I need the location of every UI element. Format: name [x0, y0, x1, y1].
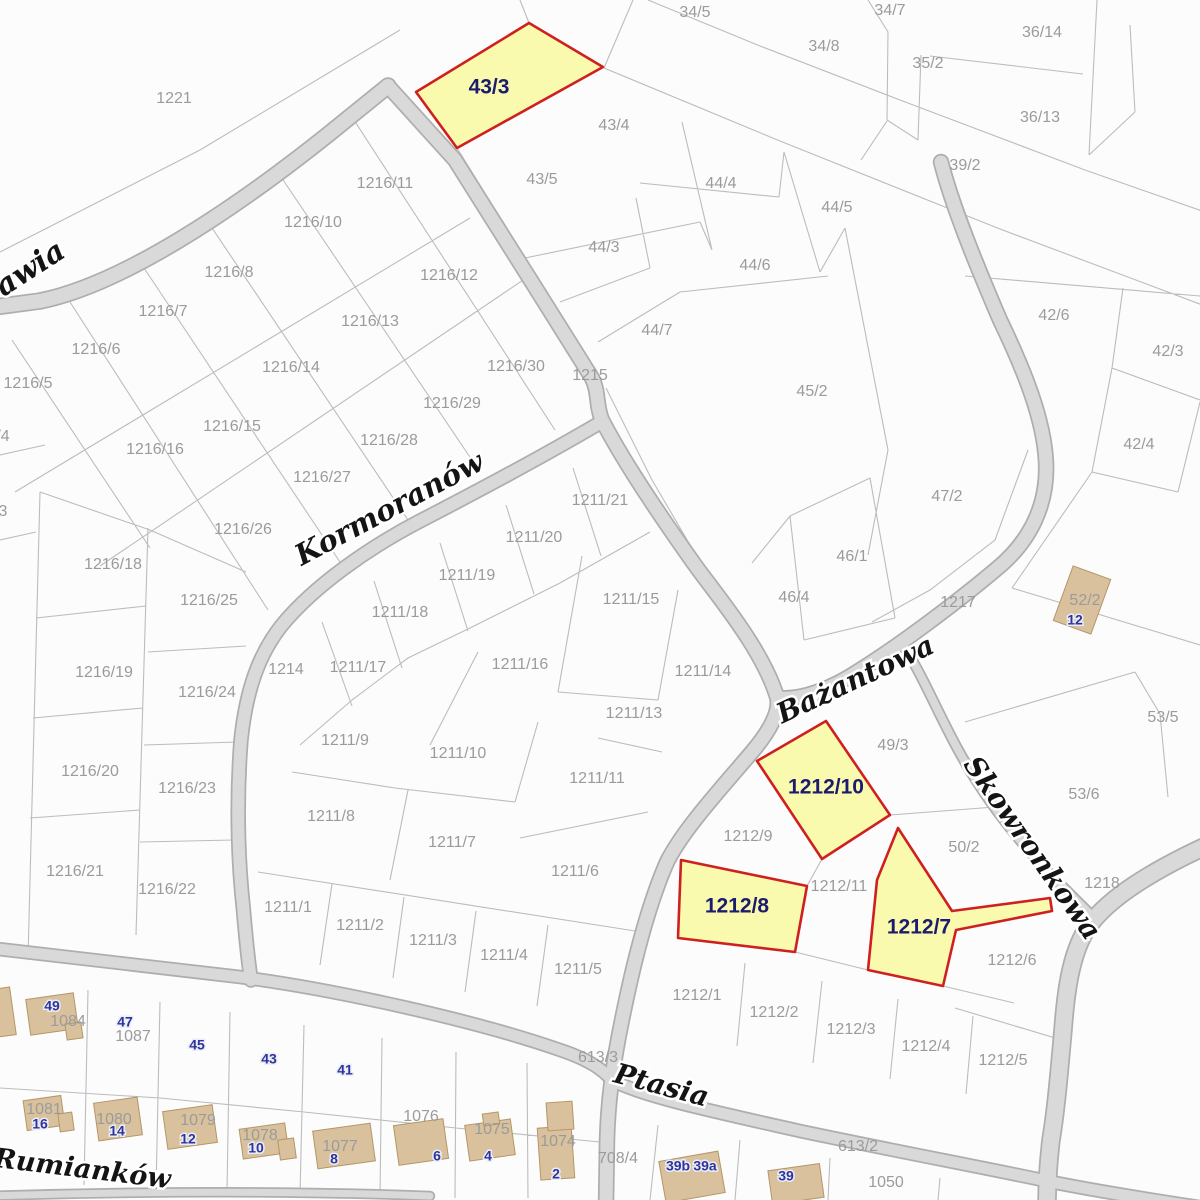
parcel-label-1212-9: 1212/9 — [724, 828, 773, 845]
parcel-label-1212-3: 1212/3 — [827, 1021, 876, 1038]
parcel-label-613-2: 613/2 — [838, 1138, 878, 1155]
parcel-label-34-7: 34/7 — [874, 2, 905, 19]
address-badge-10: 10 — [248, 1140, 264, 1156]
address-badge-12: 12 — [1067, 612, 1083, 628]
parcel-label-1087: 1087 — [115, 1028, 151, 1045]
parcel-label-43-4: 43/4 — [598, 117, 629, 134]
parcel-label-1211-19: 1211/19 — [439, 567, 496, 584]
parcel-label-1216-26: 1216/26 — [214, 521, 272, 538]
parcel-label-1211-15: 1211/15 — [603, 591, 660, 608]
parcel-label-44-6: 44/6 — [739, 257, 770, 274]
address-badge-39a: 39a — [693, 1158, 717, 1174]
parcel-label-1211-7: 1211/7 — [428, 834, 476, 851]
parcel-label-46-1: 46/1 — [836, 548, 867, 565]
parcel-label-1216-6: 1216/6 — [72, 341, 121, 358]
parcel-label-1077: 1077 — [322, 1138, 358, 1155]
parcel-label-42-4: 42/4 — [1123, 436, 1154, 453]
parcel-label-1214: 1214 — [268, 661, 304, 678]
parcel-label-1216-18: 1216/18 — [84, 556, 142, 573]
parcel-label-1216-13: 1216/13 — [341, 313, 399, 330]
address-badge-12: 12 — [180, 1131, 196, 1147]
parcel-label-1216-30: 1216/30 — [487, 358, 545, 375]
address-badge-2: 2 — [552, 1166, 560, 1182]
cadastral-map[interactable]: 43/31212/101212/81212/7 34/534/734/835/2… — [0, 0, 1200, 1200]
parcel-label-1211-6: 1211/6 — [551, 863, 599, 880]
address-badge-4: 4 — [484, 1148, 492, 1164]
parcel-label-1216-7: 1216/7 — [139, 303, 188, 320]
parcel-label-34-5: 34/5 — [679, 4, 710, 21]
address-badge-16: 16 — [32, 1116, 48, 1132]
parcel-label-1216-27: 1216/27 — [293, 469, 351, 486]
parcel-label-1211-20: 1211/20 — [506, 529, 563, 546]
parcel-label-47-2: 47/2 — [931, 488, 962, 505]
address-badge-39b: 39b — [666, 1158, 690, 1174]
parcel-label-1084: 1084 — [50, 1013, 86, 1030]
parcel-label-52-2: 52/2 — [1069, 592, 1100, 609]
parcel-label-1211-18: 1211/18 — [372, 604, 429, 621]
parcel-label-1216-14: 1216/14 — [262, 359, 320, 376]
parcel-label-1216-5: 1216/5 — [4, 375, 53, 392]
parcel-label-1218: 1218 — [1084, 875, 1120, 892]
parcel-label-1211-11: 1211/11 — [569, 770, 625, 787]
parcel-label-1215: 1215 — [572, 367, 608, 384]
parcel-label-34-8: 34/8 — [808, 38, 839, 55]
parcel-label-1216-22: 1216/22 — [138, 881, 196, 898]
parcel-label-1211-16: 1211/16 — [492, 656, 549, 673]
address-badge-49: 49 — [44, 998, 60, 1014]
parcel-label-1211-10: 1211/10 — [430, 745, 487, 762]
parcel-label-1216-16: 1216/16 — [126, 441, 184, 458]
parcel-label-4: /4 — [0, 428, 10, 445]
parcel-label-45-2: 45/2 — [796, 383, 827, 400]
parcel-label-1211-1: 1211/1 — [264, 899, 312, 916]
highlight-parcel-label-1212-8: 1212/8 — [705, 895, 770, 918]
address-badge-39: 39 — [778, 1168, 794, 1184]
parcel-label-1211-8: 1211/8 — [307, 808, 355, 825]
parcel-label-1216-28: 1216/28 — [360, 432, 418, 449]
cadastral-map-viewport[interactable]: 43/31212/101212/81212/7 34/534/734/835/2… — [0, 0, 1200, 1200]
parcel-label-1211-3: 1211/3 — [409, 932, 457, 949]
parcel-label-1217: 1217 — [940, 594, 976, 611]
parcel-label-42-6: 42/6 — [1038, 307, 1069, 324]
address-badge-43: 43 — [261, 1051, 277, 1067]
parcel-label-49-3: 49/3 — [877, 737, 908, 754]
highlight-parcel-label-1212-10: 1212/10 — [788, 776, 864, 799]
parcel-label-36-13: 36/13 — [1020, 109, 1060, 126]
building — [278, 1138, 297, 1160]
address-badge-8: 8 — [330, 1151, 338, 1167]
parcel-label-1211-5: 1211/5 — [554, 961, 602, 978]
parcel-label-1212-1: 1212/1 — [673, 987, 722, 1004]
parcel-label-1212-2: 1212/2 — [750, 1004, 799, 1021]
parcel-label-1216-19: 1216/19 — [75, 664, 133, 681]
parcel-label-1216-21: 1216/21 — [46, 863, 104, 880]
parcel-label-1221: 1221 — [156, 90, 192, 107]
parcel-label-1212-6: 1212/6 — [988, 952, 1037, 969]
building — [546, 1101, 574, 1131]
parcel-label-1079: 1079 — [180, 1112, 216, 1129]
parcel-label-53-5: 53/5 — [1147, 709, 1178, 726]
parcel-label-1211-14: 1211/14 — [675, 663, 732, 680]
parcel-label-1216-24: 1216/24 — [178, 684, 236, 701]
parcel-label-1212-11: 1212/11 — [811, 878, 868, 895]
parcel-label-44-3: 44/3 — [588, 239, 619, 256]
parcel-label-3: 3 — [0, 503, 8, 520]
parcel-label-46-4: 46/4 — [778, 589, 809, 606]
parcel-label-708-4: 708/4 — [598, 1150, 638, 1167]
highlight-parcel-label-1212-7: 1212/7 — [887, 916, 951, 939]
parcel-label-50-2: 50/2 — [948, 839, 979, 856]
highlight-parcel-label-43-3: 43/3 — [469, 76, 510, 99]
parcel-label-43-5: 43/5 — [526, 171, 557, 188]
parcel-label-1216-15: 1216/15 — [203, 418, 261, 435]
parcel-label-613-3: 613/3 — [578, 1049, 618, 1066]
parcel-label-39-2: 39/2 — [949, 157, 980, 174]
parcel-label-1216-10: 1216/10 — [284, 214, 342, 231]
parcel-label-1216-11: 1216/11 — [357, 175, 414, 192]
parcel-label-1211-9: 1211/9 — [321, 732, 369, 749]
parcel-label-1211-2: 1211/2 — [336, 917, 384, 934]
address-badge-14: 14 — [109, 1123, 125, 1139]
parcel-label-1211-4: 1211/4 — [480, 947, 528, 964]
address-badge-6: 6 — [433, 1148, 441, 1164]
parcel-label-1075: 1075 — [474, 1121, 510, 1138]
parcel-label-1216-29: 1216/29 — [423, 395, 481, 412]
parcel-label-1212-5: 1212/5 — [979, 1052, 1028, 1069]
address-badge-41: 41 — [337, 1062, 353, 1078]
parcel-label-1216-20: 1216/20 — [61, 763, 119, 780]
address-badge-45: 45 — [189, 1037, 205, 1053]
address-badge-47: 47 — [117, 1014, 133, 1030]
parcel-label-1216-25: 1216/25 — [180, 592, 238, 609]
parcel-label-1211-17: 1211/17 — [330, 659, 387, 676]
parcel-label-1212-4: 1212/4 — [902, 1038, 951, 1055]
parcel-label-53-6: 53/6 — [1068, 786, 1099, 803]
parcel-label-1216-8: 1216/8 — [205, 264, 254, 281]
parcel-label-44-5: 44/5 — [821, 199, 852, 216]
parcel-label-36-14: 36/14 — [1022, 24, 1062, 41]
road-rumiankow-pas — [0, 1192, 430, 1196]
parcel-label-1216-12: 1216/12 — [420, 267, 478, 284]
parcel-label-1211-21: 1211/21 — [572, 492, 629, 509]
parcel-label-44-7: 44/7 — [641, 322, 672, 339]
parcel-label-1216-23: 1216/23 — [158, 780, 216, 797]
parcel-label-1076: 1076 — [403, 1108, 439, 1125]
parcel-label-1211-13: 1211/13 — [606, 705, 663, 722]
parcel-label-1050: 1050 — [868, 1174, 904, 1191]
parcel-label-44-4: 44/4 — [705, 175, 736, 192]
parcel-label-42-3: 42/3 — [1152, 343, 1183, 360]
parcel-label-35-2: 35/2 — [912, 55, 943, 72]
parcel-label-1074: 1074 — [540, 1133, 576, 1150]
